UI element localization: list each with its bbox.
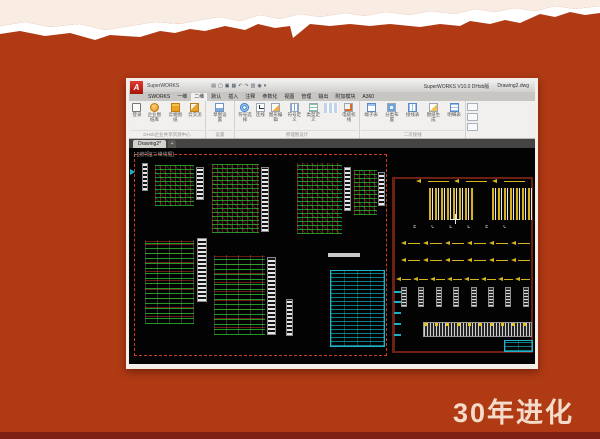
ribbon-tab-默认[interactable]: 默认 — [208, 93, 224, 101]
wire-icon — [256, 103, 265, 112]
ribbon-button-草图设置[interactable]: 草图设置 — [212, 102, 228, 123]
ribbon: 登录企业图纸库云端图纸云交流DHsb企业共享资源中心草图设置设置符号选择连线图形… — [129, 101, 535, 139]
ribbon-button-接线表[interactable]: 接线表 — [406, 102, 420, 118]
minigrid-icon — [324, 103, 338, 113]
layout-icon — [387, 103, 396, 112]
print-icon[interactable]: ▥ — [251, 83, 256, 90]
tool-icon — [190, 103, 199, 112]
cad-crosshair — [450, 214, 460, 224]
ribbon-tab-管理[interactable]: 管理 — [298, 93, 314, 101]
ribbon-button-label: 企业图纸库 — [146, 113, 162, 123]
cad-screenshot[interactable]: A SuperWORKS ▤▢▣▦↶↷▥◉▾ SuperWORKS V10.0 … — [126, 78, 538, 369]
sketch-icon — [215, 103, 224, 112]
cad-striped-table — [423, 322, 533, 337]
ribbon-tab-二维[interactable]: 二维 — [191, 93, 207, 101]
viewport-controls-label[interactable]: [-][俯视][二维线框] — [134, 151, 174, 158]
ribbon-button-图纸生成[interactable]: 图纸生成 — [425, 102, 441, 123]
ribbon-button-minigrid[interactable] — [324, 102, 338, 114]
new-tab-button[interactable]: + — [168, 140, 176, 148]
cad-schematic — [297, 163, 342, 234]
ribbon-overflow-icon[interactable] — [467, 123, 478, 131]
ribbon-group-label: DHsb企业共享资源中心 — [130, 130, 204, 138]
login-icon — [132, 103, 141, 112]
cad-wlabel — [328, 253, 360, 257]
cad-terminal — [267, 257, 276, 335]
ribbon-button-符号选择[interactable]: 符号选择 — [237, 102, 253, 123]
ribbon-button-端子表[interactable]: 端子表 — [364, 102, 378, 118]
app-logo-icon[interactable]: A — [130, 81, 143, 94]
open-file-icon[interactable]: ▣ — [225, 83, 230, 90]
cad-terminal — [196, 167, 203, 199]
ribbon-tab-一维[interactable]: 一维 — [174, 93, 190, 101]
cad-ybars — [492, 188, 533, 220]
ribbon-button-label: 符号定义 — [286, 113, 302, 123]
undo-icon[interactable]: ↶ — [238, 83, 242, 90]
ribbon-tab-参数化[interactable]: 参数化 — [259, 93, 280, 101]
ribbon-group-label: 设置 — [207, 130, 232, 138]
edit-icon — [271, 103, 280, 112]
ribbon-button-label: 电缆校线 — [341, 113, 357, 123]
ribbon-tab-A360[interactable]: A360 — [359, 93, 377, 101]
ribbon-overflow-column — [466, 101, 480, 138]
cad-cyan-tags — [394, 291, 400, 336]
ribbon-tab-输出[interactable]: 输出 — [315, 93, 331, 101]
torn-paper-edge — [0, 0, 600, 60]
wtable-icon — [408, 103, 417, 112]
cad-terminal — [286, 299, 293, 336]
more-icon[interactable]: ▾ — [264, 83, 267, 90]
ribbon-group: 端子表分类布置接线表图纸生成明细表二次接线 — [360, 101, 466, 138]
ribbon-button-连线[interactable]: 连线 — [256, 102, 265, 118]
cad-schematic-lines — [214, 255, 265, 335]
quick-access-toolbar: ▤▢▣▦↶↷▥◉▾ — [211, 83, 266, 90]
ribbon-group-label: 二次接线 — [361, 130, 464, 138]
ribbon-button-电缆校线[interactable]: 电缆校线 — [341, 102, 357, 123]
new-file-icon[interactable]: ▢ — [218, 83, 223, 90]
ribbon-button-label: 类型定义 — [305, 113, 321, 123]
drawing-canvas[interactable]: [-][俯视][二维线框] E C L L E C — [129, 148, 535, 364]
cad-cyan-marker — [130, 169, 135, 175]
save-file-icon[interactable]: ▦ — [231, 83, 236, 90]
ribbon-group-label: 原理图设计 — [236, 130, 359, 138]
ribbon-tab-bar: SWORKS一维二维默认插入注释参数化视图管理输出附加模块A360 — [129, 92, 535, 101]
ribbon-button-label: 分类布置 — [384, 113, 400, 123]
cad-arrow-row — [413, 178, 527, 184]
ribbon-tab-注释[interactable]: 注释 — [242, 93, 258, 101]
folder-icon — [171, 103, 180, 112]
settings-icon[interactable]: ◉ — [257, 83, 261, 90]
ribbon-tab-附加模块[interactable]: 附加模块 — [332, 93, 358, 101]
ribbon-button-label: 端子表 — [364, 113, 378, 118]
ribbon-button-label: 符号选择 — [237, 113, 253, 123]
slide: A SuperWORKS ▤▢▣▦↶↷▥◉▾ SuperWORKS V10.0 … — [0, 0, 600, 439]
ribbon-button-云端图纸[interactable]: 云端图纸 — [167, 102, 183, 123]
cad-window: A SuperWORKS ▤▢▣▦↶↷▥◉▾ SuperWORKS V10.0 … — [129, 80, 535, 364]
ribbon-group: 登录企业图纸库云端图纸云交流DHsb企业共享资源中心 — [129, 101, 206, 138]
ribbon-overflow-icon[interactable] — [467, 113, 478, 121]
ribbon-button-label: 图纸生成 — [425, 113, 441, 123]
app-title: SuperWORKS — [147, 83, 179, 89]
disc-icon — [150, 103, 159, 112]
title-bar: SuperWORKS ▤▢▣▦↶↷▥◉▾ SuperWORKS V10.0 DH… — [129, 80, 535, 92]
cad-cyan-table — [330, 270, 385, 347]
ribbon-button-label: 草图设置 — [212, 113, 228, 123]
ribbon-button-企业图纸库[interactable]: 企业图纸库 — [146, 102, 162, 123]
cad-terminal — [197, 238, 207, 303]
app-menu-icon[interactable]: ▤ — [211, 83, 216, 90]
ribbon-tab-视图[interactable]: 视图 — [281, 93, 297, 101]
cad-terminal — [378, 172, 384, 207]
title-bar-right: SuperWORKS V10.0 DHsb版 Drawing2.dwg — [424, 83, 535, 90]
ribbon-button-label: 云端图纸 — [167, 113, 183, 123]
cable-icon — [344, 103, 353, 112]
bom-icon — [450, 103, 459, 112]
cad-terminal — [261, 167, 269, 232]
ribbon-button-符号定义[interactable]: 符号定义 — [286, 102, 302, 123]
ribbon-group: 草图设置设置 — [206, 101, 234, 138]
cad-cyan-table — [504, 340, 533, 352]
ribbon-group: 符号选择连线图形编辑符号定义类型定义电缆校线原理图设计 — [235, 101, 361, 138]
ribbon-tab-SWORKS[interactable]: SWORKS — [145, 93, 173, 101]
ribbon-button-登录[interactable]: 登录 — [132, 102, 141, 118]
cad-schematic-lines — [145, 240, 194, 324]
ribbon-button-云交流[interactable]: 云交流 — [188, 102, 202, 118]
cad-schematic — [354, 170, 376, 215]
ribbon-overflow-icon[interactable] — [467, 103, 478, 111]
ribbon-button-label: 接线表 — [406, 113, 420, 118]
redo-icon[interactable]: ↷ — [244, 83, 248, 90]
cad-symbol-row: E C L L E C — [413, 225, 531, 234]
ribbon-button-label: 登录 — [132, 113, 141, 118]
app-version-title: SuperWORKS V10.0 DHsb版 — [424, 83, 490, 90]
ribbon-button-明细表[interactable]: 明细表 — [447, 102, 461, 118]
define-icon — [290, 103, 299, 112]
ttable-icon — [367, 103, 376, 112]
ribbon-button-label: 云交流 — [188, 113, 202, 118]
type-icon — [309, 103, 318, 112]
ribbon-button-类型定义[interactable]: 类型定义 — [305, 102, 321, 123]
cad-arrow-row — [395, 274, 531, 283]
document-tab-bar: Drawing2*+ — [129, 139, 535, 148]
cad-arrow-row — [399, 256, 531, 265]
document-title: Drawing2.dwg — [497, 83, 529, 90]
ribbon-button-图形编辑[interactable]: 图形编辑 — [268, 102, 284, 123]
bottom-accent-strip — [0, 432, 600, 439]
cad-terminal — [142, 163, 148, 191]
ribbon-button-分类布置[interactable]: 分类布置 — [384, 102, 400, 123]
cad-terminal — [344, 167, 351, 210]
doc-tab-Drawing2[interactable]: Drawing2* — [133, 140, 166, 148]
cad-schematic — [155, 165, 194, 206]
cad-schematic — [212, 164, 259, 233]
cad-arrow-row — [399, 239, 531, 248]
ribbon-button-label: 连线 — [256, 113, 265, 118]
slide-caption: 30年进化 — [453, 391, 574, 430]
ribbon-tab-插入[interactable]: 插入 — [225, 93, 241, 101]
ribbon-button-label: 明细表 — [447, 113, 461, 118]
cad-post-row — [401, 287, 529, 306]
gen-icon — [429, 103, 438, 112]
symbol-icon — [240, 103, 249, 112]
ribbon-button-label: 图形编辑 — [268, 113, 284, 123]
